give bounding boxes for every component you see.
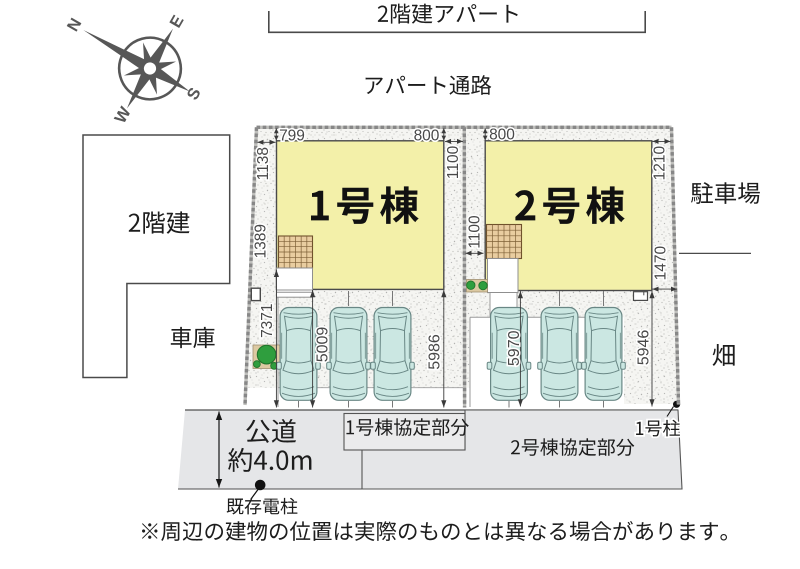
svg-text:1138: 1138 [255, 147, 272, 180]
svg-text:1470: 1470 [652, 245, 669, 280]
svg-text:800: 800 [489, 127, 515, 144]
svg-text:799: 799 [279, 127, 305, 144]
svg-text:5970: 5970 [506, 330, 523, 366]
svg-text:5946: 5946 [635, 330, 652, 366]
svg-text:7371: 7371 [259, 303, 276, 337]
svg-text:1100: 1100 [445, 145, 462, 179]
svg-text:1100: 1100 [466, 215, 483, 249]
svg-text:5009: 5009 [315, 327, 332, 363]
svg-text:1389: 1389 [253, 224, 270, 258]
svg-text:1210: 1210 [652, 145, 669, 180]
svg-text:5986: 5986 [427, 334, 444, 370]
svg-text:800: 800 [414, 127, 440, 144]
